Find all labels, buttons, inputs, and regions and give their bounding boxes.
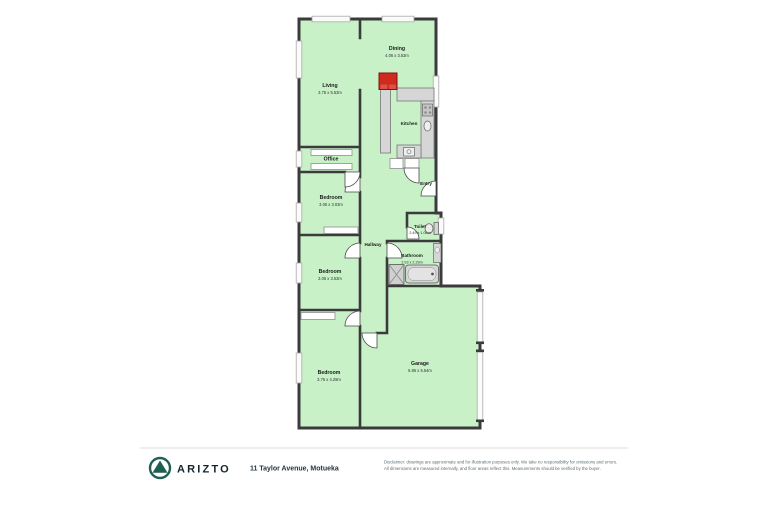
room-label-office: Office bbox=[324, 157, 339, 163]
office-joinery-top bbox=[311, 150, 352, 156]
room-dims-bathroom: 2.93 x 2.29m bbox=[401, 261, 422, 265]
window-top-living bbox=[312, 16, 350, 22]
room-label-living: Living bbox=[322, 83, 337, 89]
room-label-bedroom1: Bedroom bbox=[320, 195, 343, 201]
listing-address: 11 Taylor Avenue, Motueka bbox=[250, 466, 339, 473]
room-label-kitchen: Kitchen bbox=[401, 121, 418, 126]
room-dims-bedroom1: 3.06 x 3.03m bbox=[319, 202, 343, 207]
window-left-bedroom3 bbox=[296, 353, 302, 383]
room-label-bedroom2: Bedroom bbox=[319, 269, 342, 275]
kitchen-counter-top bbox=[397, 88, 434, 101]
room-dims-garage: 5.86 x 5.54m bbox=[408, 368, 432, 373]
window-left-living bbox=[296, 41, 302, 78]
garage-door-panel-2 bbox=[477, 352, 483, 420]
wardrobe-bedroom3 bbox=[301, 313, 335, 320]
sink-icon bbox=[424, 121, 431, 131]
room-label-garage: Garage bbox=[411, 361, 429, 367]
kitchen-peninsula bbox=[381, 89, 391, 153]
garage-door-panel-1 bbox=[477, 292, 483, 342]
wardrobe-bedroom1 bbox=[324, 227, 358, 234]
disclaimer-line-2: All dimensions are measured internally, … bbox=[384, 466, 601, 471]
room-label-dining: Dining bbox=[389, 46, 405, 52]
arizto-logo-icon bbox=[150, 458, 170, 478]
room-label-hallway: Hallway bbox=[364, 242, 382, 247]
office-joinery-bottom bbox=[311, 164, 352, 170]
window-left-office bbox=[296, 151, 302, 167]
room-dims-toilet: 2.49 x 1.06m bbox=[409, 231, 430, 235]
window-top-dining bbox=[382, 16, 414, 22]
room-label-toilet: Toilet bbox=[414, 224, 426, 229]
room-label-bedroom3: Bedroom bbox=[318, 370, 341, 376]
window-toilet bbox=[438, 218, 444, 234]
room-label-entry: Entry bbox=[420, 181, 432, 186]
room-label-bathroom: Bathroom bbox=[401, 253, 423, 258]
floorplan-image: Dining 4.06 x 3.53m Living 3.75 x 5.53m … bbox=[0, 0, 768, 512]
room-dims-living: 3.75 x 5.53m bbox=[318, 90, 342, 95]
window-left-bedroom1 bbox=[296, 203, 302, 222]
brand-name: ARIZTO bbox=[177, 464, 231, 476]
entry-cupboard-2 bbox=[405, 159, 419, 169]
entry-cupboard-1 bbox=[390, 159, 403, 169]
window-left-bedroom2 bbox=[296, 263, 302, 283]
stove-icon bbox=[423, 104, 433, 116]
room-dims-bedroom2: 3.05 x 3.53m bbox=[318, 276, 342, 281]
toilet-cistern bbox=[434, 223, 439, 235]
fireplace bbox=[379, 73, 397, 90]
floorplan-page: Dining 4.06 x 3.53m Living 3.75 x 5.53m … bbox=[0, 0, 768, 512]
disclaimer-line-1: Disclaimer: drawings are approximate and… bbox=[384, 460, 617, 465]
dishwasher-icon bbox=[404, 148, 415, 157]
room-dims-bedroom3: 3.75 x 4.29m bbox=[317, 377, 341, 382]
room-dims-dining: 4.06 x 3.53m bbox=[385, 53, 409, 58]
